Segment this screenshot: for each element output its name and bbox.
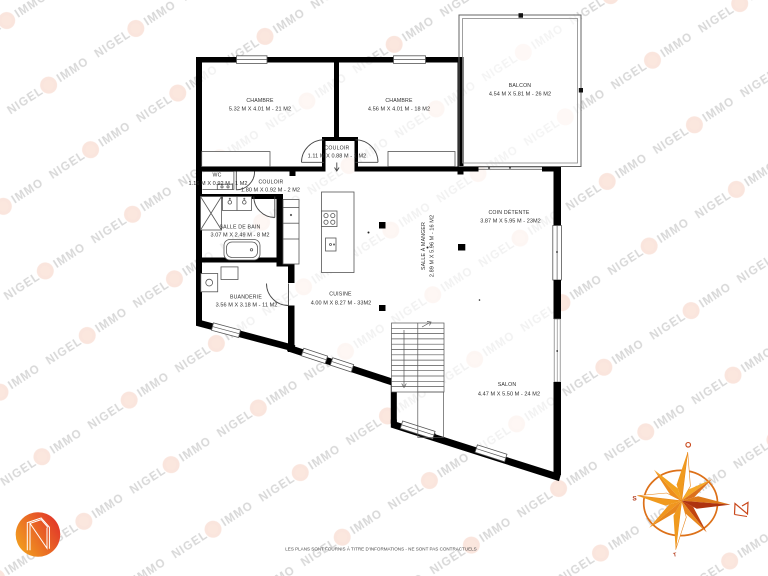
svg-text:SALLE À MANGER: SALLE À MANGER xyxy=(420,222,427,270)
svg-text:2.89 M X 5.96 M - 16 M2: 2.89 M X 5.96 M - 16 M2 xyxy=(430,215,436,277)
svg-text:COULOIR: COULOIR xyxy=(324,146,349,152)
svg-text:4.54 M X 5.81 M - 26 M2: 4.54 M X 5.81 M - 26 M2 xyxy=(489,92,551,98)
svg-text:CHAMBRE: CHAMBRE xyxy=(385,98,413,104)
svg-text:SALON: SALON xyxy=(498,382,517,388)
svg-text:3.07 M X 2.49 M - 8 M2: 3.07 M X 2.49 M - 8 M2 xyxy=(210,233,269,239)
svg-text:COIN DÉTENTE: COIN DÉTENTE xyxy=(488,209,529,216)
svg-text:3.56 M X 3.18 M - 11 M2: 3.56 M X 3.18 M - 11 M2 xyxy=(216,303,278,309)
svg-text:CHAMBRE: CHAMBRE xyxy=(246,98,274,104)
svg-text:1.80 M X 0.92 M - 2 M2: 1.80 M X 0.92 M - 2 M2 xyxy=(241,188,300,194)
svg-text:4.47 M X 5.50 M - 24 M2: 4.47 M X 5.50 M - 24 M2 xyxy=(478,392,540,398)
svg-text:4.56 M X 4.01 M - 18 M2: 4.56 M X 4.01 M - 18 M2 xyxy=(368,107,430,113)
svg-text:BUANDERIE: BUANDERIE xyxy=(230,295,262,301)
svg-text:CUISINE: CUISINE xyxy=(329,292,352,298)
svg-text:BALCON: BALCON xyxy=(509,83,532,89)
svg-text:1.11 M X 0.88 M - 1 M2: 1.11 M X 0.88 M - 1 M2 xyxy=(308,154,367,160)
svg-text:LES PLANS SONT FOURNIS À TITRE: LES PLANS SONT FOURNIS À TITRE D'INFORMA… xyxy=(285,546,476,552)
svg-text:SALLE DE BAIN: SALLE DE BAIN xyxy=(220,225,261,231)
svg-text:COULOIR: COULOIR xyxy=(258,180,283,186)
svg-text:4.00 M X 8.27 M - 33M2: 4.00 M X 8.27 M - 33M2 xyxy=(311,301,372,307)
svg-text:1.16 M X 0.92 M - 1 M2: 1.16 M X 0.92 M - 1 M2 xyxy=(188,181,247,187)
svg-text:S: S xyxy=(632,496,637,503)
svg-text:WC: WC xyxy=(212,173,221,179)
svg-text:3.87 M X 5.95 M - 23M2: 3.87 M X 5.95 M - 23M2 xyxy=(480,219,541,225)
svg-text:5.32 M X 4.01 M - 21 M2: 5.32 M X 4.01 M - 21 M2 xyxy=(229,107,291,113)
